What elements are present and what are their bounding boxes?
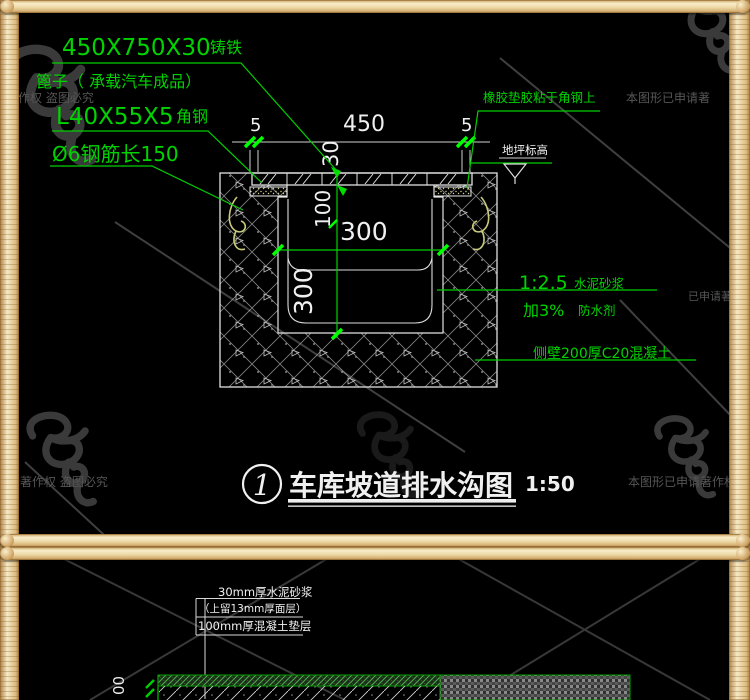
dim-width-inner: 300: [340, 217, 388, 246]
frame-scroll-knob: [736, 534, 749, 547]
detail-number: 1: [253, 468, 271, 502]
dim-ticks: [146, 680, 154, 697]
concrete-base-layer: [159, 686, 440, 700]
drainage-detail-drawing: 作权 盗图必究 本图形已申请著 请著作权 盗图必究 本图形已申请著作权 已申请著…: [0, 0, 750, 547]
callout-sidewall: 侧壁200厚C20混凝土: [533, 346, 671, 362]
dim-grate-thickness: 30: [319, 140, 343, 167]
drawing-title: 车库坡道排水沟图: [289, 469, 513, 502]
callout-additive-amount: 加3%: [523, 301, 564, 320]
callout-grate-material: 铸铁: [210, 38, 242, 57]
frame-scroll-knob: [1, 534, 14, 547]
channel-section: [220, 173, 497, 387]
frame-bottom-edge-top-sheet: [0, 534, 750, 547]
frame-scroll-knob: [736, 0, 749, 13]
watermark-text: 本图形已申请著作权: [628, 475, 736, 489]
callout-angle-material: 角钢: [176, 107, 208, 126]
screed-layer: [158, 675, 440, 686]
floor-level-label: 地坪标高: [502, 143, 548, 157]
drawing-title-block: 1 车库坡道排水沟图 1:50: [243, 465, 575, 507]
callout-grate-spec: 450X750X30: [62, 35, 211, 61]
dim-span: 450: [343, 112, 385, 137]
frame-right-edge-top-sheet: [729, 0, 750, 547]
callout-texts: 450X750X30 铸铁 篦子（ 承载汽车成品） L40X55X5 角钢 Ø6…: [36, 35, 671, 362]
callout-grate-desc: 篦子（ 承载汽车成品）: [36, 72, 201, 91]
frame-scroll-knob: [736, 547, 749, 560]
drawing-scale: 1:50: [525, 472, 575, 496]
callout-mortar-ratio: 1:2.5: [519, 272, 568, 294]
dim-depth-inner: 300: [289, 267, 318, 315]
frame-right-edge-bottom-sheet: [729, 547, 750, 700]
layer-note-2: （上留13mm厚面层）: [199, 602, 306, 615]
slab-section: [158, 675, 630, 700]
watermark-text: 本图形已申请著: [626, 91, 710, 105]
watermark-text: 请著作权 盗图必究: [8, 474, 108, 489]
floor-layers-drawing: 30mm厚水泥砂浆 （上留13mm厚面层） 100mm厚混凝土垫层 00: [0, 547, 750, 700]
cad-viewport: 作权 盗图必究 本图形已申请著 请著作权 盗图必究 本图形已申请著作权 已申请著…: [0, 0, 750, 700]
dim-gap-left: 5: [250, 115, 261, 136]
title-underline-thick: [288, 499, 516, 503]
paving-strip-layer: [440, 675, 630, 700]
concrete-hatch-body: [220, 173, 497, 387]
watermark-text: 作权 盗图必究: [18, 90, 94, 105]
title-underline-thin: [288, 506, 516, 507]
frame-scroll-knob: [1, 0, 14, 13]
callout-rubber: 橡胶垫胶粘于角钢上: [483, 90, 596, 105]
elevation-triangle-icon: [504, 164, 526, 184]
callout-mortar-name: 水泥砂浆: [574, 276, 625, 291]
frame-top-edge-bottom-sheet: [0, 547, 750, 560]
callout-additive-name: 防水剂: [578, 303, 616, 318]
layer-note-3: 100mm厚混凝土垫层: [198, 619, 311, 633]
callout-angle-spec: L40X55X5: [56, 104, 174, 130]
layer-note-1: 30mm厚水泥砂浆: [218, 585, 313, 599]
dragon-logo-watermark: [30, 415, 93, 502]
dim-gap-right: 5: [461, 115, 472, 136]
dim-depth-top: 100: [311, 190, 335, 228]
angle-steel-left: [250, 187, 287, 196]
dim-slab-thickness: 00: [110, 676, 128, 695]
frame-left-edge-bottom-sheet: [0, 547, 19, 700]
callout-rebar: Ø6钢筋长150: [52, 142, 179, 166]
angle-steel-right: [434, 187, 471, 196]
frame-left-edge-top-sheet: [0, 0, 19, 547]
dim-extension-lines: [232, 142, 490, 172]
grate: [252, 173, 472, 185]
frame-scroll-knob: [1, 547, 14, 560]
frame-top-edge: [0, 0, 750, 13]
